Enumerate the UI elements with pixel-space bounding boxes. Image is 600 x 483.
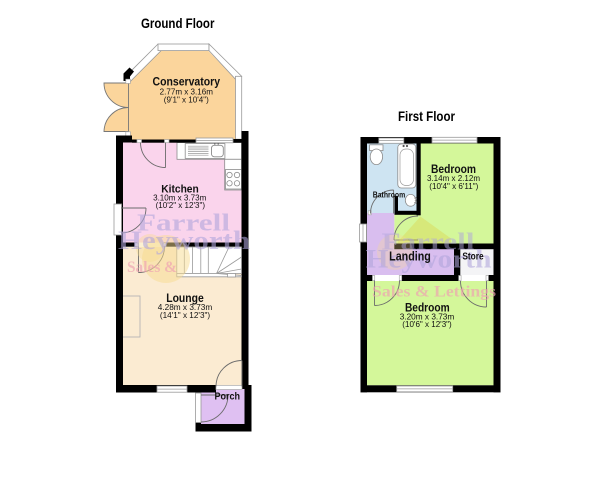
svg-text:(14'1" x 12'3"): (14'1" x 12'3")	[160, 310, 211, 320]
svg-text:Ground Floor: Ground Floor	[141, 15, 215, 31]
svg-text:(10'2" x 12'3"): (10'2" x 12'3")	[156, 200, 206, 210]
svg-text:(10'6" x 12'3"): (10'6" x 12'3")	[402, 319, 452, 329]
svg-text:Landing: Landing	[389, 249, 431, 263]
svg-text:Sales & Lettings: Sales & Lettings	[372, 284, 496, 301]
svg-text:Porch: Porch	[215, 391, 241, 402]
svg-text:(9'1" x 10'4"): (9'1" x 10'4")	[164, 95, 209, 105]
svg-text:Bathroom: Bathroom	[373, 191, 406, 200]
svg-text:Store: Store	[462, 251, 484, 262]
svg-text:Heyworth: Heyworth	[118, 226, 251, 255]
svg-text:Sales &: Sales &	[127, 259, 177, 276]
svg-text:(10'4" x 6'11"): (10'4" x 6'11")	[429, 181, 478, 191]
svg-text:First Floor: First Floor	[398, 109, 456, 124]
